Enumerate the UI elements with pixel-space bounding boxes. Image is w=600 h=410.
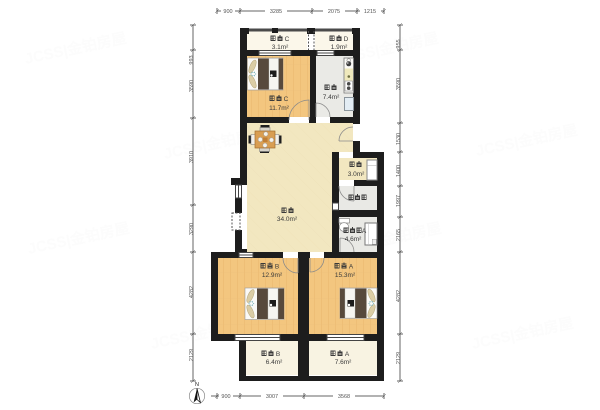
- svg-text:B: B: [275, 264, 279, 271]
- svg-text:C: C: [284, 96, 289, 103]
- svg-text:4282: 4282: [189, 286, 195, 298]
- svg-text:3285: 3285: [270, 9, 282, 15]
- svg-text:3.1m²: 3.1m²: [272, 44, 289, 51]
- svg-text:A: A: [345, 351, 350, 358]
- svg-text:4282: 4282: [396, 290, 402, 302]
- svg-text:B: B: [276, 351, 280, 358]
- svg-text:A: A: [362, 228, 367, 235]
- svg-text:3590: 3590: [396, 78, 402, 90]
- svg-text:7.4m²: 7.4m²: [323, 94, 340, 101]
- svg-text:2129: 2129: [189, 349, 195, 361]
- svg-text:1997: 1997: [396, 195, 402, 207]
- svg-text:900: 900: [221, 394, 230, 400]
- svg-text:12.9m²: 12.9m²: [262, 272, 283, 279]
- svg-text:1.9m²: 1.9m²: [331, 44, 348, 51]
- svg-text:955: 955: [396, 39, 402, 48]
- svg-text:2075: 2075: [328, 9, 340, 15]
- svg-text:3910: 3910: [189, 151, 195, 163]
- svg-text:993: 993: [189, 55, 195, 64]
- svg-text:3.0m²: 3.0m²: [348, 171, 365, 178]
- svg-text:1215: 1215: [364, 9, 376, 15]
- svg-text:A: A: [349, 264, 354, 271]
- svg-text:34.0m²: 34.0m²: [277, 216, 298, 223]
- svg-text:11.7m²: 11.7m²: [269, 105, 290, 112]
- svg-text:2165: 2165: [396, 229, 402, 241]
- svg-text:7.6m²: 7.6m²: [335, 359, 352, 366]
- svg-text:6.4m²: 6.4m²: [266, 359, 283, 366]
- svg-text:D: D: [344, 36, 349, 43]
- svg-text:2129: 2129: [396, 352, 402, 364]
- svg-text:C: C: [285, 36, 290, 43]
- svg-text:4.6m²: 4.6m²: [345, 236, 362, 243]
- svg-text:3007: 3007: [266, 394, 278, 400]
- svg-text:15.3m²: 15.3m²: [335, 272, 356, 279]
- svg-text:3568: 3568: [338, 394, 350, 400]
- svg-text:1530: 1530: [396, 133, 402, 145]
- svg-text:N: N: [195, 382, 199, 388]
- svg-text:3590: 3590: [189, 80, 195, 92]
- svg-text:900: 900: [223, 9, 232, 15]
- svg-text:3290: 3290: [189, 223, 195, 235]
- svg-text:1400: 1400: [396, 165, 402, 177]
